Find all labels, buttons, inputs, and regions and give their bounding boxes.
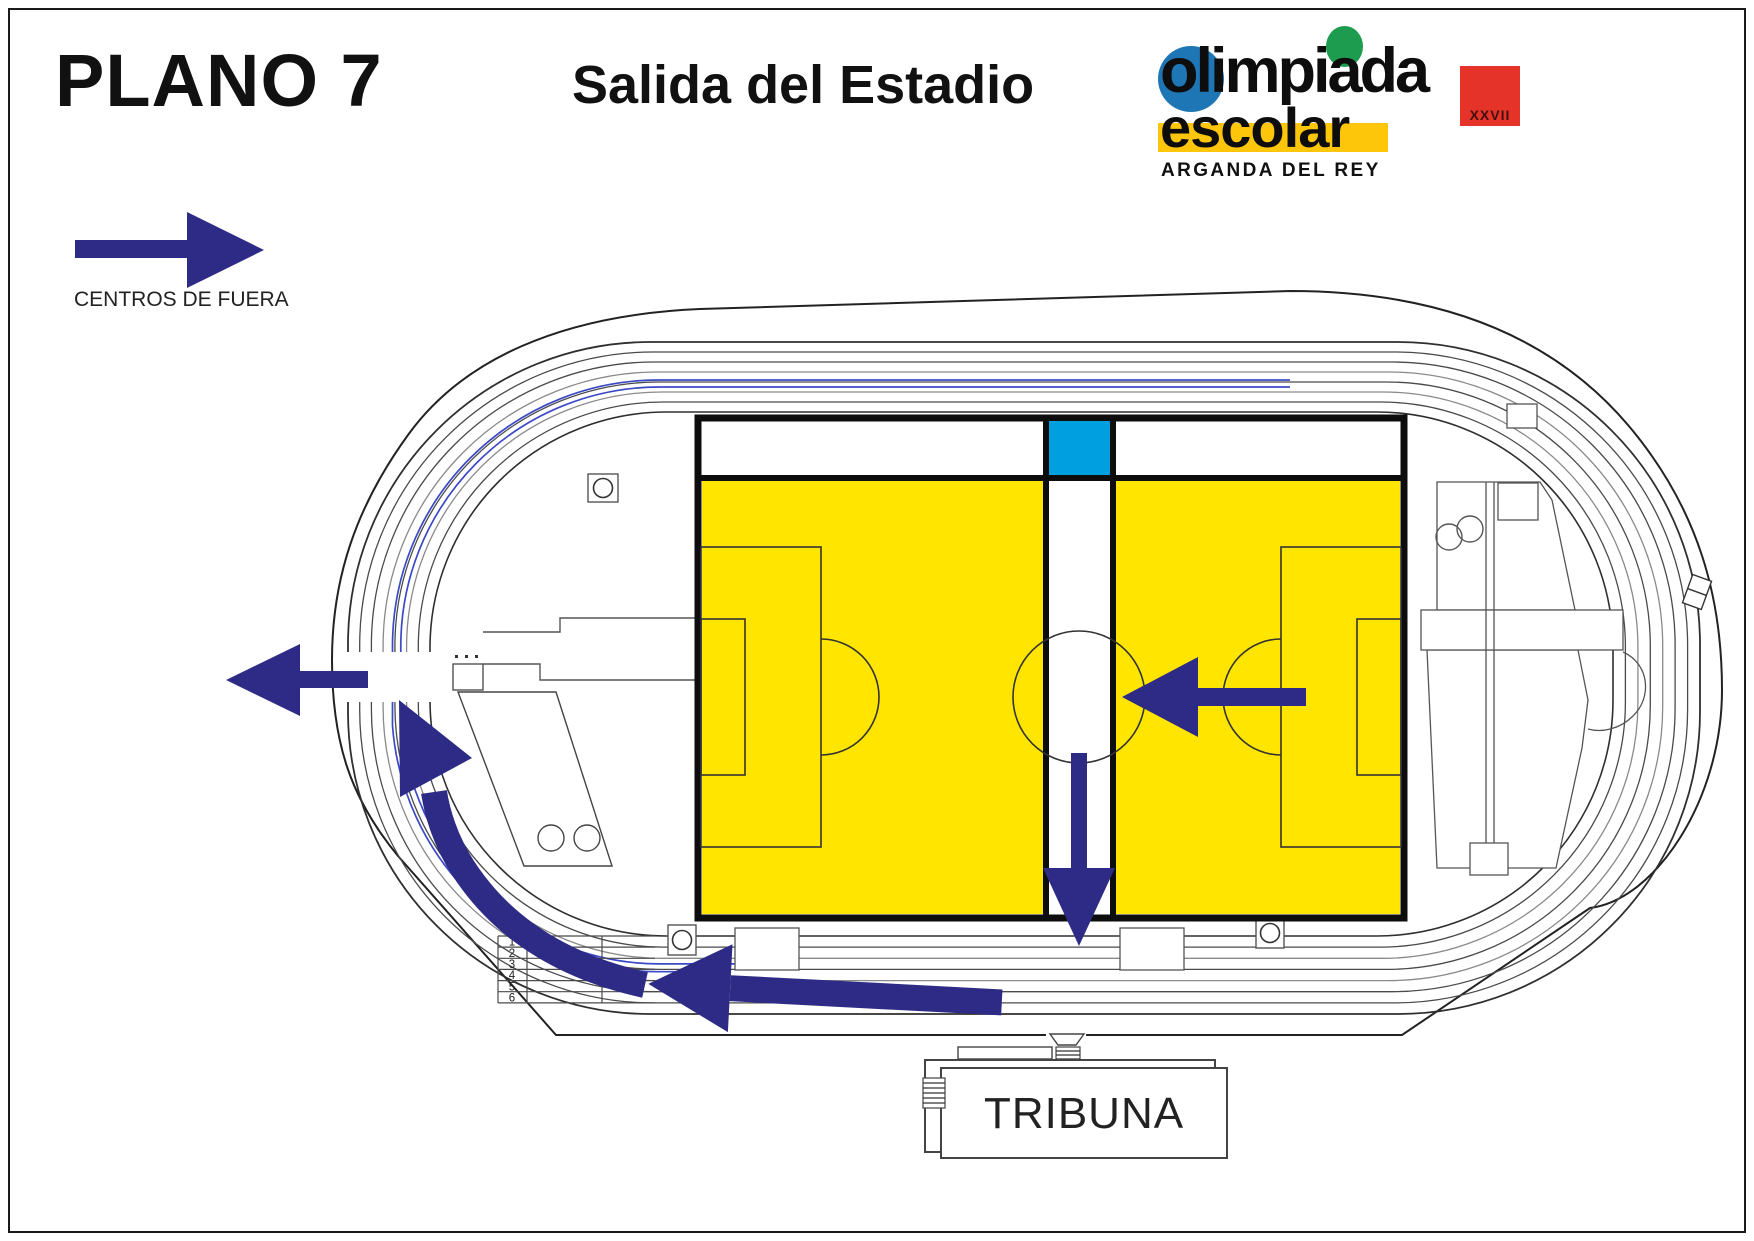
arrow-head xyxy=(226,644,300,716)
tribuna-label: TRIBUNA xyxy=(984,1089,1184,1138)
dot xyxy=(465,655,468,658)
lane-number-2: 2 xyxy=(509,948,515,960)
mat-box xyxy=(1498,483,1538,520)
legend-label: CENTROS DE FUERA xyxy=(74,288,289,311)
tribuna-stand: TRIBUNA xyxy=(923,1060,1227,1158)
arrow-shaft xyxy=(1071,753,1087,871)
pitch-block xyxy=(698,418,1404,918)
lane-number-6: 6 xyxy=(509,992,515,1004)
field-marker xyxy=(588,474,618,502)
corridor-marker xyxy=(1049,421,1110,477)
stadium-map: CENTROS DE FUERA xyxy=(0,0,1754,1241)
lane-numbers: 1 2 3 4 5 6 xyxy=(509,937,516,1005)
lane-number-4: 4 xyxy=(509,970,516,982)
football-pitch-left xyxy=(702,481,1043,914)
arrow-shaft xyxy=(1198,688,1306,706)
legend-exit-arrow-icon xyxy=(75,212,264,288)
arrow-shaft xyxy=(300,671,368,688)
plan-page: PLANO 7 Salida del Estadio olimpiada esc… xyxy=(0,0,1754,1241)
door-box xyxy=(453,664,483,690)
gate-bar xyxy=(958,1047,1052,1059)
field-marker xyxy=(668,925,696,955)
equipment-box xyxy=(1120,928,1184,970)
crossbar-runway xyxy=(1421,610,1623,650)
field-marker xyxy=(1256,918,1284,948)
tribuna-stairs xyxy=(923,1078,945,1108)
dot xyxy=(475,655,478,658)
legend-arrow-head xyxy=(187,212,264,288)
legend-arrow-shaft xyxy=(75,240,189,258)
track-gate-box xyxy=(1507,404,1537,428)
equipment-box xyxy=(735,928,799,970)
mat-box xyxy=(1470,843,1508,875)
dot xyxy=(455,655,458,658)
